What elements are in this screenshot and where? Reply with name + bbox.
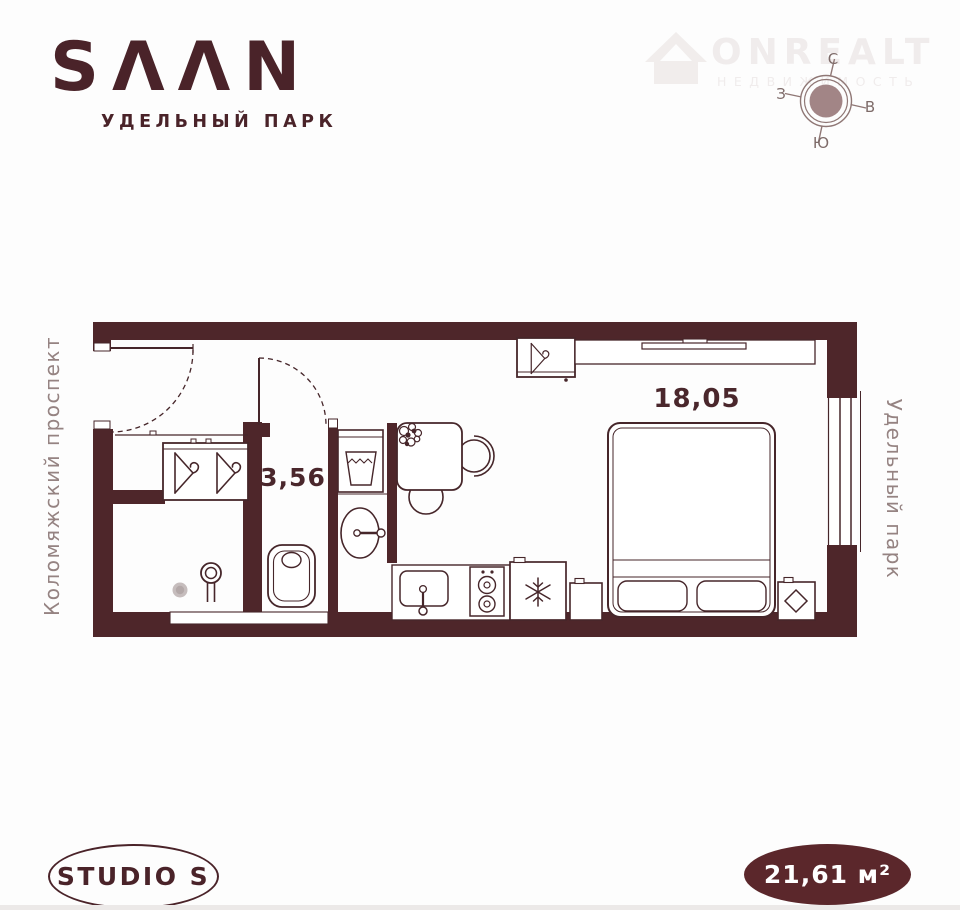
- washbasin-icon: [341, 508, 385, 558]
- wall-shelf: [642, 343, 746, 349]
- pillow: [618, 581, 687, 611]
- living-wardrobe: [517, 338, 575, 382]
- laundry-unit: [338, 430, 387, 494]
- door-jambs: [94, 343, 338, 429]
- living-room-area-label: 18,05: [653, 384, 740, 414]
- entry-door: [111, 344, 193, 432]
- chair-icon: [458, 436, 494, 476]
- entry-wardrobe: [115, 431, 248, 500]
- ventilation-duct: [170, 612, 328, 624]
- bathroom-area-label: 3,56: [260, 463, 326, 492]
- toilet-icon: [268, 545, 315, 607]
- bathroom-door-swing-arc: [259, 358, 326, 425]
- photo-edge-strip: [0, 905, 960, 910]
- nightstand: [570, 583, 602, 620]
- double-bed: [608, 423, 775, 617]
- pillow: [697, 581, 766, 611]
- total-area-badge: 21,61 м²: [744, 844, 911, 905]
- layout-type-label: STUDIO S: [57, 862, 210, 891]
- bathroom-door: [259, 358, 326, 425]
- nightstand-decor: [778, 578, 815, 621]
- total-area-label: 21,61 м²: [764, 860, 891, 889]
- layout-type-badge: STUDIO S: [48, 844, 219, 909]
- shower-area: [173, 563, 222, 602]
- floor-plan: 18,05 3,56: [0, 0, 960, 910]
- window: [827, 391, 861, 552]
- refrigerator-icon: [510, 558, 566, 621]
- kitchen-counter: [392, 565, 510, 620]
- stove-icon: [470, 567, 504, 616]
- dining-set: [397, 423, 494, 514]
- shower-mixer-icon: [201, 563, 221, 602]
- page: ONREALT НЕДВИЖИМОСТЬ SΛΛN УДЕЛЬНЫЙ ПАРК …: [0, 0, 960, 910]
- nightstand-knob: [575, 579, 584, 584]
- entry-door-swing-arc: [111, 350, 193, 432]
